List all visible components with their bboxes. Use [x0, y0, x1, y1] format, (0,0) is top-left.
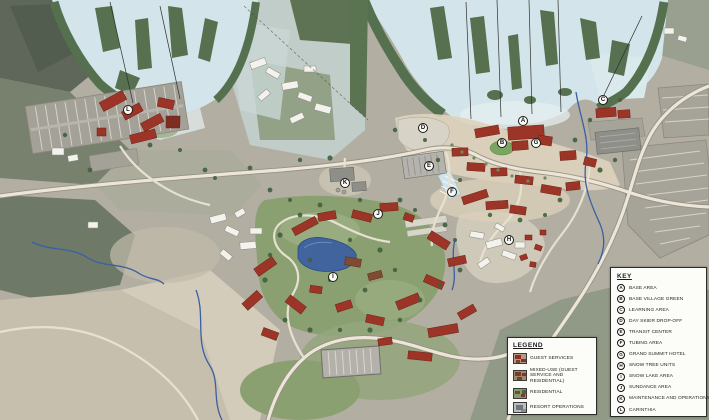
key-item-letter: B — [617, 295, 625, 303]
legend-title: LEGEND — [513, 342, 591, 349]
area-marker[interactable]: K — [340, 178, 350, 188]
key-item-letter: K — [617, 395, 625, 403]
legend-swatch — [513, 370, 527, 381]
key-items: A BASE AREA B BASE VILLAGE GREEN C LEARN… — [617, 284, 700, 414]
legend-item-label: GUEST SERVICES — [530, 356, 573, 362]
resort-master-plan-map — [0, 0, 709, 420]
key-item-label: SUNDANCE AREA — [629, 385, 671, 390]
key-item: H SNOW TREE UNITS — [617, 362, 700, 370]
area-marker[interactable]: A — [518, 116, 528, 126]
key-item-label: SNOW LAKE AREA — [629, 374, 673, 379]
legend-swatch — [513, 353, 527, 364]
key-item-label: TUBING AREA — [629, 341, 662, 346]
area-marker[interactable]: L — [123, 105, 133, 115]
key-item-letter: L — [617, 406, 625, 414]
key-item-label: DAY SKIER DROP-OFF — [629, 319, 682, 324]
key-item: L CARINTHIA — [617, 406, 700, 414]
screenshot-stage: ABCDEFGHIJKL LEGEND GUEST SERVICES MIXED… — [0, 0, 709, 420]
key-item: B BASE VILLAGE GREEN — [617, 295, 700, 303]
area-marker[interactable]: C — [598, 95, 608, 105]
key-item-letter: H — [617, 362, 625, 370]
key-item: G GRAND SUMMIT HOTEL — [617, 351, 700, 359]
key-item-label: BASE AREA — [629, 286, 657, 291]
key-item-letter: E — [617, 328, 625, 336]
legend-item: MIXED-USE (GUEST SERVICE AND RESIDENTIAL… — [513, 368, 591, 385]
legend-item-label: MIXED-USE (GUEST SERVICE AND RESIDENTIAL… — [530, 368, 591, 385]
area-marker[interactable]: E — [424, 161, 434, 171]
legend-items: GUEST SERVICES MIXED-USE (GUEST SERVICE … — [513, 353, 591, 413]
key-item-letter: I — [617, 373, 625, 381]
area-marker[interactable]: D — [418, 123, 428, 133]
legend-item: GUEST SERVICES — [513, 353, 591, 364]
area-marker[interactable]: G — [531, 138, 541, 148]
key-item: F TUBING AREA — [617, 339, 700, 347]
key-item-label: TRANSIT CENTER — [629, 330, 672, 335]
legend-item-label: RESORT OPERATIONS — [530, 405, 584, 411]
area-marker[interactable]: I — [328, 272, 338, 282]
key-item-label: BASE VILLAGE GREEN — [629, 297, 683, 302]
key-item-letter: D — [617, 317, 625, 325]
legend-swatch — [513, 388, 527, 399]
area-marker[interactable]: B — [497, 138, 507, 148]
key-panel: KEY A BASE AREA B BASE VILLAGE GREEN C L… — [610, 267, 707, 417]
south-parking-structure — [321, 346, 381, 378]
key-item-letter: G — [617, 351, 625, 359]
key-item: J SUNDANCE AREA — [617, 384, 700, 392]
key-item: K MAINTENANCE AND OPERATIONS — [617, 395, 700, 403]
legend-panel: LEGEND GUEST SERVICES MIXED-USE (GUEST S… — [507, 337, 597, 415]
key-item-label: MAINTENANCE AND OPERATIONS — [629, 396, 709, 401]
key-item: A BASE AREA — [617, 284, 700, 292]
key-item-label: SNOW TREE UNITS — [629, 363, 675, 368]
area-marker[interactable]: J — [373, 209, 383, 219]
key-item: E TRANSIT CENTER — [617, 328, 700, 336]
key-title: KEY — [617, 273, 700, 280]
key-item-letter: F — [617, 339, 625, 347]
area-marker[interactable]: F — [447, 187, 457, 197]
key-item-label: CARINTHIA — [629, 408, 656, 413]
key-item-letter: A — [617, 284, 625, 292]
key-item: I SNOW LAKE AREA — [617, 373, 700, 381]
key-item-label: LEARNING AREA — [629, 308, 669, 313]
legend-item: RESIDENTIAL — [513, 388, 591, 399]
legend-item-label: RESIDENTIAL — [530, 390, 563, 396]
legend-item: RESORT OPERATIONS — [513, 402, 591, 413]
legend-swatch — [513, 402, 527, 413]
area-marker[interactable]: H — [504, 235, 514, 245]
key-item-letter: C — [617, 306, 625, 314]
key-item: C LEARNING AREA — [617, 306, 700, 314]
key-item: D DAY SKIER DROP-OFF — [617, 317, 700, 325]
key-item-label: GRAND SUMMIT HOTEL — [629, 352, 686, 357]
key-item-letter: J — [617, 384, 625, 392]
